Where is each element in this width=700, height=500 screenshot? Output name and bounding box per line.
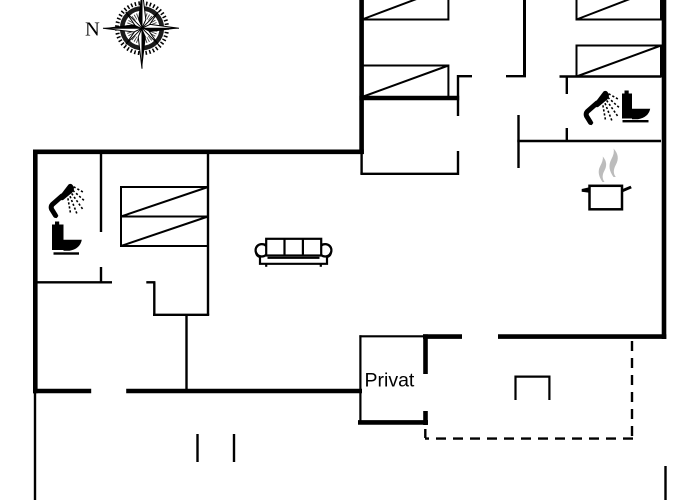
svg-text:N: N xyxy=(85,19,100,41)
svg-text:Privat: Privat xyxy=(365,370,415,392)
